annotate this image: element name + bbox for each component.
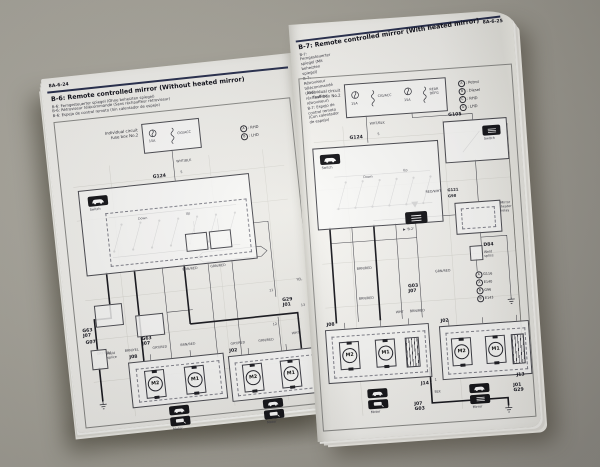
switch-caption: Switch <box>484 137 495 142</box>
left-page: 8A-6-24 B-6: Remote controlled mirror (W… <box>41 53 329 433</box>
open-book: 8A-6-24 B-6: Remote controlled mirror (W… <box>12 0 569 467</box>
connector-j08: J08 <box>326 323 334 329</box>
defogger-grid-icon <box>470 394 491 404</box>
connector-g124: G124 <box>349 135 363 141</box>
legend-value: : LHD <box>249 133 259 138</box>
left-page-number: 8A-6-24 <box>48 82 69 89</box>
fuse-icon <box>148 128 158 138</box>
mirror-motor-m2: M2 <box>451 337 473 366</box>
legend-entry-diesel: B: Diesel <box>458 87 480 95</box>
badge-caption: Motor <box>173 427 183 432</box>
wire-color-label: YEL <box>296 278 302 283</box>
defogger-switch-box: Switch <box>443 117 510 163</box>
mirror-motor-m2: M2 <box>339 341 361 370</box>
wire-color-label: WHT <box>396 311 404 315</box>
car-mirror-icon <box>320 154 341 165</box>
left-diagram-frame: A: RHD B: LHD Individual circuit fuse bo… <box>53 97 322 428</box>
weld-splice-caption: Weld splice <box>107 352 117 361</box>
mirror-heater-relay-box <box>454 200 502 235</box>
fuse-rating: 15A <box>149 140 156 145</box>
connector-g29-j01: G29 J01 <box>282 297 293 308</box>
right-diagram-frame: Individual circuit fuse box No.2 15A CIG… <box>298 64 536 432</box>
connector-pin: 12 <box>273 323 278 327</box>
connector-pin: 5 <box>180 171 183 175</box>
switch-direction-down: Down <box>363 176 373 181</box>
wire-color-label: BLK <box>434 390 441 394</box>
junction-connector <box>185 232 209 252</box>
wire-squiggle-icon <box>421 87 428 103</box>
fuse-box: 15A CIG/ACC <box>141 118 202 154</box>
mirror-motor-m1: M1 <box>280 359 303 389</box>
fuse-circuit: CIG/ACC <box>378 94 392 99</box>
connector-list-item: AG116 <box>475 270 492 278</box>
connector-pin: 5 <box>377 133 379 137</box>
relay-caption: Mirror heater relay <box>500 201 512 214</box>
badge-caption: Motor <box>371 411 381 416</box>
rear-defogger-icon <box>405 211 428 225</box>
connector-g63-j07: G63 J07 <box>141 336 152 347</box>
legend-value: : RHD <box>248 125 259 130</box>
mirror-motor-assembly: M2 M1 <box>325 323 433 384</box>
mirror-heater-element <box>511 333 526 364</box>
wire-squiggle-icon <box>169 127 177 144</box>
car-icon <box>469 383 490 393</box>
junction-connector <box>209 229 233 249</box>
connector-d84: D84 <box>483 242 494 248</box>
connector-j08: J08 <box>129 355 138 361</box>
connector-j02: J02 <box>440 319 448 325</box>
fuse-circuit: CIG/ACC <box>177 131 191 136</box>
mirror-motor-m1: M1 <box>375 338 397 367</box>
connector-j13: J13 <box>516 372 524 378</box>
right-page-number: 8A-6-25 <box>483 19 503 25</box>
mirror-motor-m2: M2 <box>144 369 167 399</box>
right-legend: A: Petrol B: Diesel C: RHD D: LHD <box>458 79 482 112</box>
mirror-motor-m1: M1 <box>485 335 507 364</box>
legend-entry-lhd: B: LHD <box>241 132 260 141</box>
weld-splice-box <box>469 245 483 261</box>
weld-splice-caption: Weld splice <box>484 250 494 259</box>
junction-connector <box>135 313 165 338</box>
circuit-reference: ▶ 'B-2' <box>403 228 414 233</box>
connector-pin: 13 <box>301 304 306 308</box>
car-mirror-icon <box>87 195 108 207</box>
connector-pin: 11 <box>269 289 274 293</box>
connector-j02: J02 <box>229 348 238 354</box>
fuse-rating: 15A <box>404 99 411 103</box>
left-legend: A: RHD B: LHD <box>240 124 260 142</box>
mirror-icon <box>170 415 191 426</box>
photo-of-open-manual: 8A-6-24 B-6: Remote controlled mirror (W… <box>0 0 600 467</box>
connector-j01-g29: J01 G29 <box>513 383 524 394</box>
mirror-motor-assembly: M2 M1 <box>228 347 322 402</box>
connector-j14: J14 <box>421 381 429 387</box>
fuse-icon <box>350 90 360 100</box>
connector-j07-g03: J07 G03 <box>414 401 425 412</box>
switch-direction-up: Up <box>403 169 408 173</box>
connector-list-item: BE143 <box>477 294 494 302</box>
fuse-box: 15A CIG/ACC 15A REAR DEFG <box>344 77 448 118</box>
connector-g105: G105 <box>448 112 462 118</box>
badge-caption: Mirror <box>473 405 483 410</box>
right-page-title: B-7: Remote controlled mirror (With heat… <box>298 17 480 51</box>
mirror-icon <box>264 409 285 420</box>
connector-list-item: BG96 <box>476 286 493 294</box>
connector-g03-j07: G03 J07 <box>408 284 419 295</box>
mirror-motor-assembly: M2 M1 <box>439 320 533 380</box>
defogger-grid-icon <box>482 125 501 136</box>
legend-key: B <box>241 133 248 140</box>
fuse-circuit: REAR DEFG <box>429 88 439 97</box>
connector-list: AG116 AE140 BG96 BE143 <box>475 270 494 303</box>
car-icon <box>263 398 284 409</box>
legend-key: A <box>240 125 247 132</box>
connector-pin: 1 <box>435 379 437 383</box>
mirror-motor-m1: M1 <box>184 365 207 395</box>
legend-entry-petrol: A: Petrol <box>458 79 480 87</box>
connector-g121-g98: G121 G98 <box>447 187 459 200</box>
relay-inner-outline <box>461 206 496 229</box>
legend-entry-lhd: D: LHD <box>460 103 482 111</box>
mirror-switch-box: Switch Down Up <box>78 173 258 277</box>
wire-squiggle-icon <box>369 90 376 106</box>
connector-list-item: AE140 <box>476 278 493 286</box>
mirror-motor-m2: M2 <box>242 363 265 393</box>
connector-g07: G07 <box>85 340 96 346</box>
junction-connector <box>94 303 124 328</box>
legend-entry-rhd: C: RHD <box>459 95 481 103</box>
fuse-icon <box>403 87 413 97</box>
car-icon <box>367 388 388 398</box>
wire-color-label: WHT <box>292 332 300 337</box>
badge-caption: Motor <box>267 420 277 425</box>
switch-caption: Switch <box>90 208 101 213</box>
mirror-icon <box>368 399 389 409</box>
connector-g63-j07: G63 J07 <box>82 328 93 339</box>
right-page: 8A-6-25 B-7: Remote controlled mirror (W… <box>289 9 542 442</box>
mirror-heater-element <box>405 337 421 368</box>
fuse-rating: 15A <box>351 102 358 106</box>
switch-caption: Switch <box>322 166 333 171</box>
